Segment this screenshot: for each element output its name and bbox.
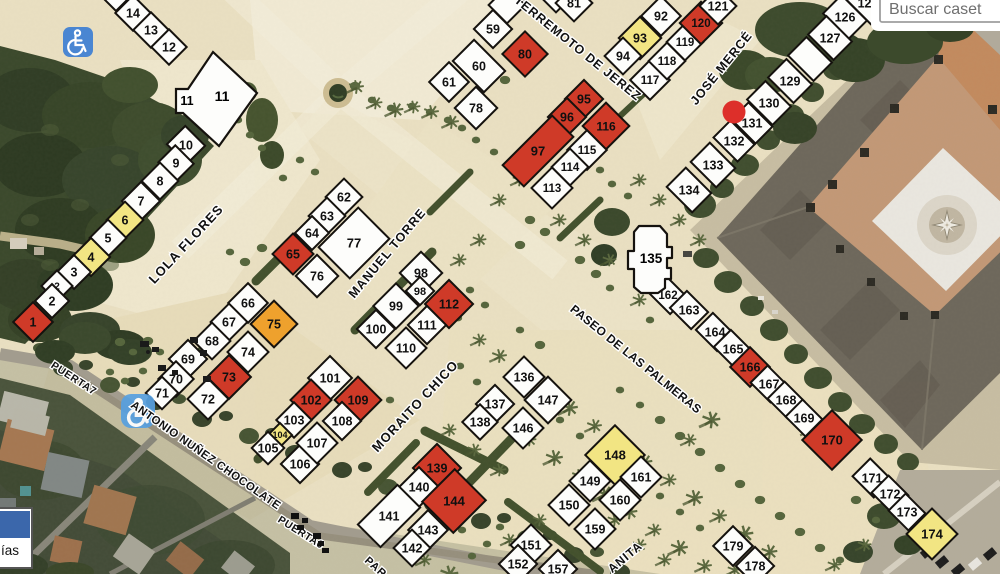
svg-text:2: 2	[49, 295, 56, 309]
svg-text:75: 75	[267, 318, 281, 332]
svg-text:72: 72	[201, 393, 215, 407]
svg-text:Buscar caset: Buscar caset	[889, 1, 982, 18]
svg-text:143: 143	[418, 524, 439, 538]
svg-text:3: 3	[71, 266, 78, 280]
svg-text:173: 173	[897, 506, 918, 520]
svg-text:97: 97	[531, 144, 545, 159]
svg-text:132: 132	[724, 135, 745, 149]
svg-text:163: 163	[679, 304, 700, 318]
svg-text:102: 102	[301, 394, 322, 408]
svg-text:141: 141	[379, 510, 400, 524]
svg-text:1: 1	[30, 316, 37, 330]
svg-text:105: 105	[258, 442, 279, 456]
svg-text:67: 67	[222, 316, 236, 330]
svg-text:76: 76	[310, 270, 324, 284]
svg-text:147: 147	[538, 394, 559, 408]
svg-text:169: 169	[794, 412, 815, 426]
svg-text:170: 170	[821, 433, 843, 448]
svg-text:78: 78	[469, 102, 483, 116]
svg-text:179: 179	[723, 540, 744, 554]
svg-text:138: 138	[470, 416, 491, 430]
svg-text:174: 174	[921, 527, 943, 542]
svg-text:139: 139	[427, 462, 448, 476]
svg-text:171: 171	[862, 472, 883, 486]
svg-text:161: 161	[631, 471, 652, 485]
svg-text:133: 133	[703, 159, 724, 173]
svg-text:137: 137	[485, 398, 506, 412]
svg-text:115: 115	[578, 145, 597, 157]
svg-text:106: 106	[290, 458, 311, 472]
svg-text:74: 74	[241, 346, 255, 360]
svg-text:152: 152	[508, 558, 529, 572]
svg-text:108: 108	[332, 415, 353, 429]
svg-text:93: 93	[633, 32, 647, 46]
svg-text:107: 107	[307, 437, 328, 451]
svg-text:101: 101	[320, 372, 341, 386]
svg-text:66: 66	[241, 297, 255, 311]
svg-text:148: 148	[604, 448, 626, 463]
svg-text:95: 95	[577, 93, 591, 107]
svg-text:94: 94	[616, 50, 630, 64]
svg-text:14: 14	[126, 7, 140, 21]
svg-text:96: 96	[560, 111, 574, 125]
svg-text:77: 77	[347, 236, 361, 251]
svg-text:117: 117	[641, 75, 660, 87]
svg-text:81: 81	[567, 0, 581, 11]
svg-text:61: 61	[442, 76, 456, 90]
svg-text:113: 113	[543, 183, 562, 195]
svg-text:144: 144	[443, 494, 465, 509]
svg-text:172: 172	[880, 488, 901, 502]
svg-text:146: 146	[513, 422, 534, 436]
svg-text:149: 149	[580, 475, 601, 489]
svg-text:135: 135	[640, 251, 663, 266]
svg-text:65: 65	[286, 248, 300, 262]
svg-text:127: 127	[820, 32, 841, 46]
svg-text:136: 136	[514, 371, 535, 385]
svg-text:73: 73	[222, 371, 236, 385]
svg-text:126: 126	[835, 11, 856, 25]
svg-text:140: 140	[409, 481, 430, 495]
svg-text:131: 131	[742, 117, 763, 131]
svg-text:69: 69	[181, 353, 195, 367]
svg-text:157: 157	[548, 563, 569, 574]
svg-text:114: 114	[561, 162, 580, 174]
svg-text:4: 4	[88, 251, 95, 265]
svg-text:11: 11	[215, 88, 230, 104]
svg-text:63: 63	[320, 210, 334, 224]
svg-text:165: 165	[723, 343, 744, 357]
svg-text:134: 134	[679, 184, 700, 198]
svg-text:71: 71	[155, 387, 169, 401]
svg-text:ías: ías	[1, 543, 19, 558]
svg-text:150: 150	[559, 499, 580, 513]
svg-text:166: 166	[740, 361, 761, 375]
svg-text:142: 142	[402, 542, 423, 556]
svg-text:11: 11	[180, 94, 193, 108]
svg-text:111: 111	[417, 319, 437, 333]
svg-text:159: 159	[585, 523, 606, 537]
svg-text:9: 9	[173, 157, 180, 171]
svg-text:160: 160	[610, 494, 631, 508]
svg-text:92: 92	[654, 10, 668, 24]
svg-text:59: 59	[486, 23, 500, 37]
svg-text:6: 6	[122, 214, 129, 228]
svg-text:98: 98	[414, 286, 426, 298]
svg-text:168: 168	[776, 394, 797, 408]
svg-text:8: 8	[157, 175, 164, 189]
svg-text:12: 12	[162, 41, 176, 55]
svg-text:62: 62	[337, 191, 351, 205]
svg-text:60: 60	[472, 60, 486, 74]
svg-text:110: 110	[396, 342, 416, 356]
svg-text:118: 118	[658, 56, 677, 68]
svg-text:68: 68	[205, 335, 219, 349]
svg-text:109: 109	[348, 394, 369, 408]
svg-text:99: 99	[389, 300, 403, 314]
svg-text:5: 5	[105, 232, 112, 246]
svg-text:121: 121	[708, 0, 729, 14]
svg-text:178: 178	[745, 560, 766, 574]
svg-text:64: 64	[305, 227, 319, 241]
svg-text:119: 119	[676, 37, 695, 49]
svg-text:112: 112	[439, 298, 459, 312]
svg-text:116: 116	[596, 119, 616, 133]
svg-text:100: 100	[366, 323, 387, 337]
svg-text:120: 120	[691, 18, 710, 30]
svg-text:7: 7	[138, 195, 145, 209]
svg-text:13: 13	[144, 24, 158, 38]
svg-text:130: 130	[759, 97, 780, 111]
svg-text:80: 80	[518, 48, 532, 62]
svg-text:103: 103	[284, 414, 305, 428]
svg-text:129: 129	[780, 75, 801, 89]
